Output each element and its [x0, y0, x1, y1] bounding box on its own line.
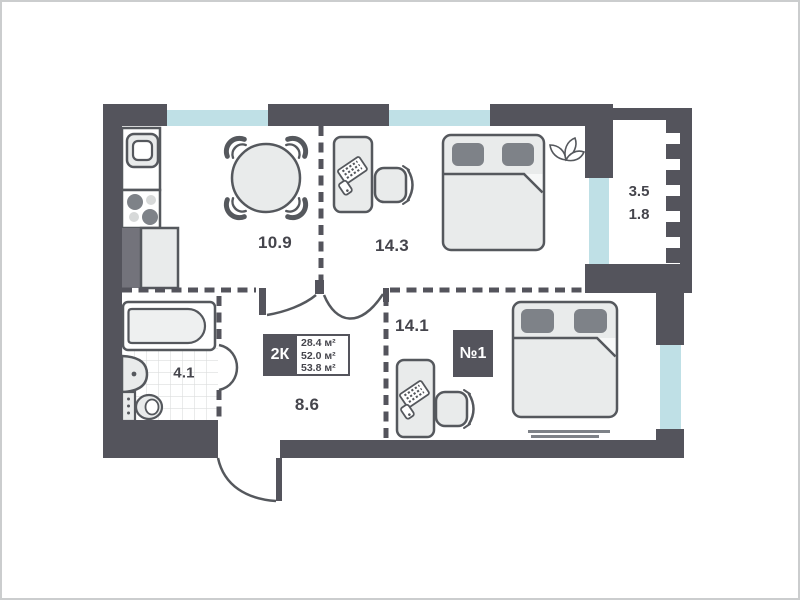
- room-label-bathroom: 4.1: [173, 365, 194, 382]
- plant-icon: [550, 138, 584, 161]
- toilet-icon: [122, 392, 162, 421]
- unit-area-living: 28.4 м²: [301, 337, 348, 350]
- entrance-door-swing-icon: [218, 458, 276, 501]
- desk-icon: [397, 360, 434, 437]
- window-strip: [167, 110, 268, 126]
- dining-table-icon: [222, 134, 311, 223]
- balcony-labels: 3.5 1.8: [629, 180, 650, 226]
- unit-type-badge: 2К: [263, 334, 297, 376]
- unit-area-list: 28.4 м² 52.0 м² 53.8 м²: [297, 334, 350, 376]
- room-label-hallway: 8.6: [295, 395, 319, 415]
- room-label-bedroom-right: 14.1: [395, 316, 429, 336]
- bathtub-icon: [123, 302, 215, 350]
- double-bed-icon: [513, 302, 617, 417]
- kitchen-cabinet-icon: [122, 228, 140, 288]
- floor-plan-canvas: 10.9 14.3 14.1 8.6 4.1 3.5 1.8 2К 28.4 м…: [0, 0, 800, 600]
- unit-info-box: 2К 28.4 м² 52.0 м² 53.8 м²: [263, 334, 350, 376]
- window-strip: [660, 345, 681, 429]
- fridge-icon: [141, 228, 178, 288]
- window-strip: [589, 178, 609, 264]
- office-chair-icon: [375, 166, 413, 204]
- desk-icon: [334, 137, 372, 212]
- balcony-area-full: 3.5: [629, 180, 650, 203]
- unit-area-total-balcony: 53.8 м²: [301, 362, 348, 375]
- floor-plan-graphic: [0, 0, 800, 600]
- room-label-kitchen-living: 10.9: [258, 233, 292, 253]
- door-swing-icon: [324, 294, 383, 319]
- washbasin-icon: [122, 356, 147, 392]
- kitchen-sink-icon: [127, 134, 158, 167]
- door-swing-icon: [219, 345, 237, 390]
- unit-area-total: 52.0 м²: [301, 350, 348, 363]
- window-strip: [389, 110, 490, 126]
- apartment-number-badge: №1: [453, 330, 493, 377]
- office-chair-icon: [436, 390, 474, 428]
- door-swing-icon: [267, 295, 316, 315]
- room-label-bedroom-top: 14.3: [375, 236, 409, 256]
- balcony-railing: [613, 108, 692, 276]
- double-bed-icon: [443, 135, 544, 250]
- rug-icon: [528, 432, 610, 437]
- balcony-area-reduced: 1.8: [629, 203, 650, 226]
